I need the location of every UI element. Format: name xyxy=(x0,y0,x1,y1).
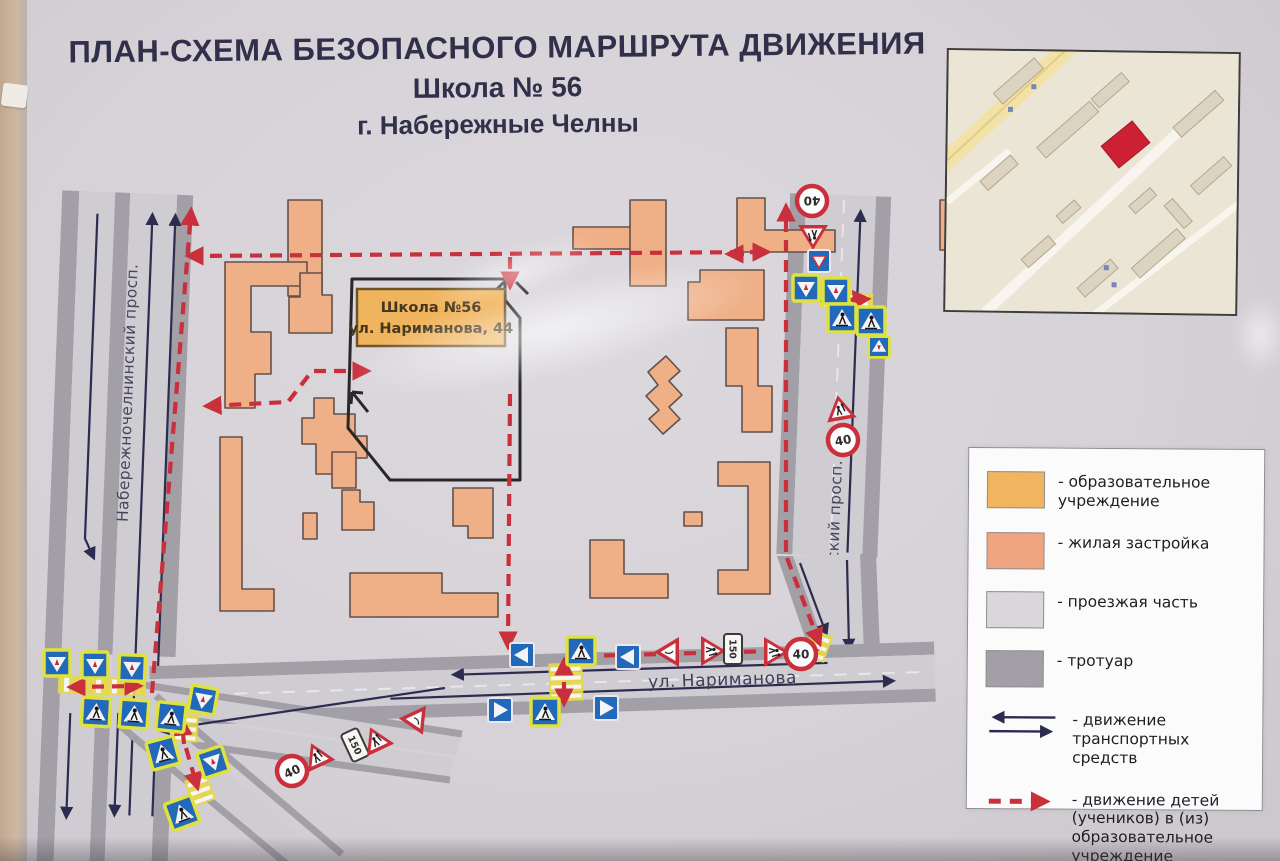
sign-cw xyxy=(531,698,559,726)
school-building: Школа №56 ул. Нариманова, 44 xyxy=(348,279,528,480)
sign-d150: 150 xyxy=(724,634,742,664)
legend-item-residential: - жилая застройка xyxy=(986,531,1249,571)
school-label-line2: ул. Нариманова, 44 xyxy=(349,321,513,337)
svg-text:40: 40 xyxy=(793,648,810,662)
inset-city-map xyxy=(943,48,1241,316)
legend-swatch-roadway xyxy=(986,591,1044,628)
legend-swatch-sidewalk xyxy=(986,650,1044,687)
sign-cwa xyxy=(188,685,218,715)
sign-cw xyxy=(119,699,149,729)
sign-cwa xyxy=(119,655,146,682)
school-label-box xyxy=(357,289,505,346)
legend-item-roadway: - проезжая часть xyxy=(986,590,1249,630)
sign-gwb xyxy=(808,250,830,272)
sign-s40: 40 xyxy=(826,423,861,458)
legend-swatch-education xyxy=(987,471,1045,508)
poster-bottom-edge xyxy=(0,837,1280,861)
tape-piece xyxy=(1,83,29,109)
legend-item-traffic: - движение транспортных средств xyxy=(985,708,1248,769)
school-label-line1: Школа №56 xyxy=(381,300,482,316)
sign-ow xyxy=(616,645,640,669)
legend-swatch-residential xyxy=(986,532,1044,569)
sign-cw xyxy=(81,697,110,726)
sign-s40: 40 xyxy=(786,639,816,669)
sign-cwa xyxy=(197,746,230,779)
legend-item-education: - образовательное учреждение xyxy=(987,470,1250,512)
legend-label-education: - образовательное учреждение xyxy=(1058,471,1210,512)
sign-cw xyxy=(146,736,180,770)
legend-box: - образовательное учреждение - жилая зас… xyxy=(966,447,1266,811)
sign-ow xyxy=(594,696,618,720)
sign-cwa xyxy=(44,650,70,676)
sign-cw xyxy=(857,307,885,335)
poster-sheet: Набережночелнинский просп. Московский пр… xyxy=(0,0,1280,861)
legend-item-sidewalk: - тротуар xyxy=(986,649,1249,689)
poster-subtitle-school: Школа № 56 xyxy=(55,67,940,108)
svg-text:40: 40 xyxy=(804,194,821,208)
legend-label-sidewalk: - тротуар xyxy=(1057,649,1134,670)
wall-background xyxy=(0,0,27,861)
sign-cw xyxy=(156,702,187,733)
svg-text:40: 40 xyxy=(834,432,853,449)
sign-ow xyxy=(488,698,512,722)
sign-s40: 40 xyxy=(797,186,827,216)
sign-cw xyxy=(828,304,856,332)
sign-cwa xyxy=(823,278,849,304)
sign-cwa xyxy=(793,275,819,301)
sign-ow xyxy=(510,643,534,667)
photo-of-poster: Набережночелнинский просп. Московский пр… xyxy=(0,0,1280,861)
title-block: ПЛАН-СХЕМА БЕЗОПАСНОГО МАРШРУТА ДВИЖЕНИЯ… xyxy=(54,25,940,144)
svg-text:150: 150 xyxy=(727,639,738,659)
sign-cw xyxy=(567,637,595,665)
children-route-arrow-icon xyxy=(985,789,1059,822)
sign-cwa xyxy=(869,337,890,358)
traffic-arrows-icon xyxy=(985,709,1059,742)
legend-label-roadway: - проезжая часть xyxy=(1057,590,1198,612)
legend-label-residential: - жилая застройка xyxy=(1058,531,1210,553)
legend-label-traffic: - движение транспортных средств xyxy=(1072,709,1248,769)
sign-cwa xyxy=(82,652,108,678)
